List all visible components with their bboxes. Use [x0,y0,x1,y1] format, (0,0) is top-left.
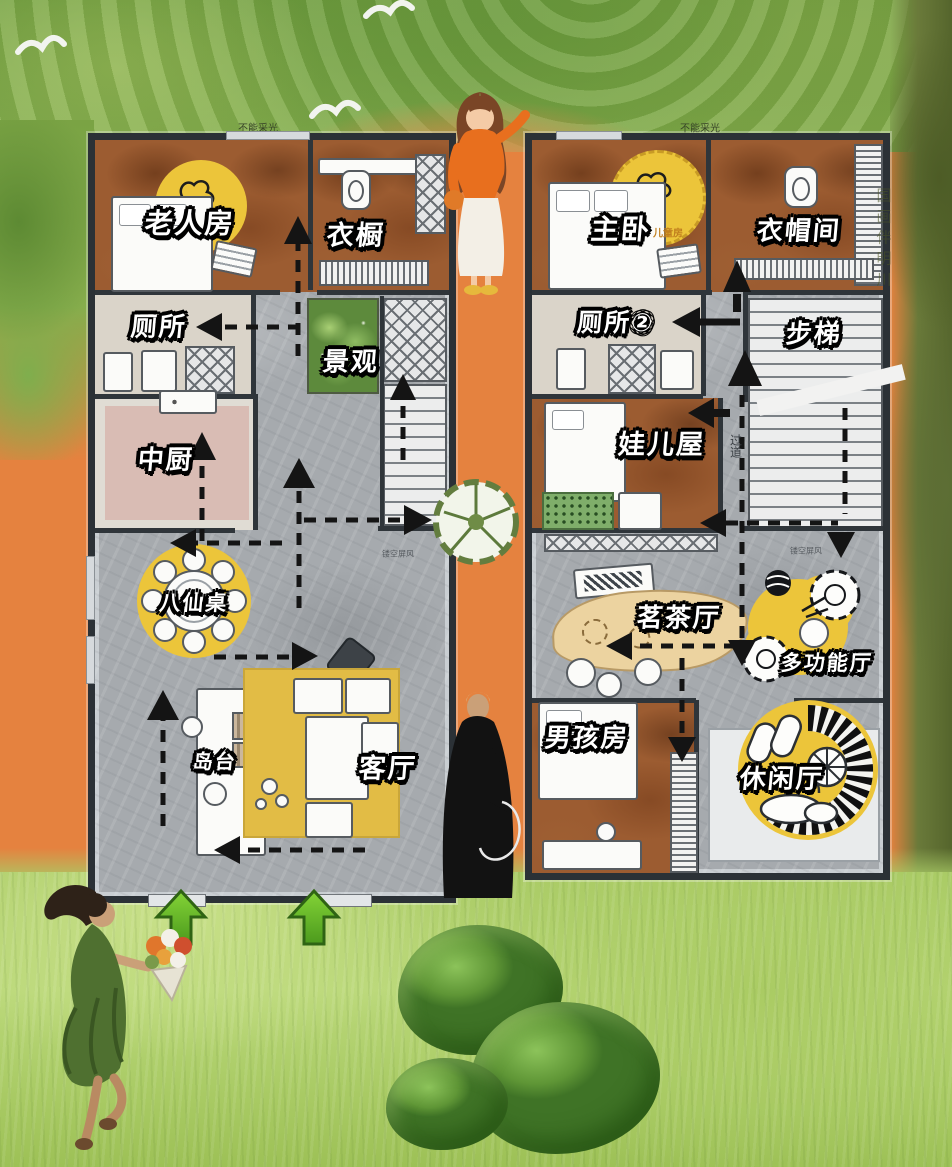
shower [608,344,656,394]
sofa-module [345,678,391,714]
dresser [618,492,662,530]
floor-cushion [566,658,596,688]
wall [532,290,712,295]
bench-seat [583,571,642,592]
room-label-cloakroom: 衣帽间 [755,211,842,248]
pouf [261,778,278,795]
watermark-text: 国画伴明川 [874,188,895,293]
room-label-master-bedroom: 主卧 [589,208,653,248]
flower-tree-top-icon [430,474,522,570]
room-label-chinese-kitchen: 中厨 [136,440,195,477]
desk-chair [596,822,616,842]
pouf [255,798,267,810]
note-hollow-screen-right: 镂空屏风 [790,546,822,557]
room-label-toilet-2: 厕所② [576,303,656,339]
floor-plan-left [88,133,456,903]
note-hollow-screen-left: 镂空屏风 [382,549,414,560]
toilet-fixture [556,348,586,390]
sofa-module [293,678,343,714]
note-kids-room: 儿童房 [653,225,683,240]
screen-hatch [544,534,718,552]
floor-cushion [596,672,622,698]
wall [380,296,384,526]
wall [743,292,748,402]
pouf [275,794,289,808]
sink [660,350,694,390]
room-label-multi-function-hall: 多功能厅 [780,647,875,677]
wardrobe-cabinet [319,260,429,286]
wall [95,528,235,533]
room-label-stairs: 步梯 [784,314,843,351]
shower [185,346,235,394]
window [86,636,95,684]
wall [253,394,258,530]
stove-icon [159,390,217,414]
floor-plan-poster: 老人房 衣橱 厕所 景观 中厨 八仙桌 岛台 客厅 主卧 衣帽间 厕所② 步梯 … [0,0,952,1167]
wall [743,526,883,531]
room-label-wardrobe: 衣橱 [325,214,386,253]
play-mat [542,492,614,530]
window [86,556,95,620]
window [226,131,310,140]
room-label-toilet: 厕所 [129,307,188,344]
window [556,131,622,140]
black-robed-figure-illustration [432,692,524,907]
room-label-living-room: 客厅 [357,747,418,786]
sink [141,350,177,392]
wall [251,292,256,396]
toilet-fixture [103,352,133,392]
cabinet-grille [734,258,874,280]
desk [542,840,642,870]
desk-icon [656,243,702,279]
room-label-elder-room: 老人房 [143,202,237,242]
room-label-kids-room: 娃儿屋 [617,423,707,462]
wall [532,394,703,399]
island-sink [203,782,227,806]
woman-standing-illustration [428,88,533,298]
wall [701,292,706,396]
pillow [552,410,584,430]
room-label-landscape: 景观 [321,342,380,379]
tea-tray [581,618,608,645]
sofa-module [305,802,353,838]
kettle-icon [634,658,662,686]
wall [746,290,883,295]
multi-function-hall-icon [732,565,872,697]
room-label-eight-immortals-table: 八仙桌 [158,587,230,617]
entry-door-gap [312,894,372,907]
room-label-leisure-hall: 休闲厅 [738,759,825,796]
wall [718,398,723,530]
room-label-island-counter: 岛台 [192,746,239,775]
stool [181,716,203,738]
shelf-ladder [670,752,698,873]
bed [544,402,626,502]
note-no-daylight-right: 不能采光 [680,120,720,135]
stair-void-hatch [383,298,447,382]
room-label-boys-room: 男孩房 [543,718,630,755]
note-corridor: 过道 [728,434,745,458]
room-label-tea-room: 茗茶厅 [635,598,722,635]
running-woman-illustration [36,878,246,1167]
